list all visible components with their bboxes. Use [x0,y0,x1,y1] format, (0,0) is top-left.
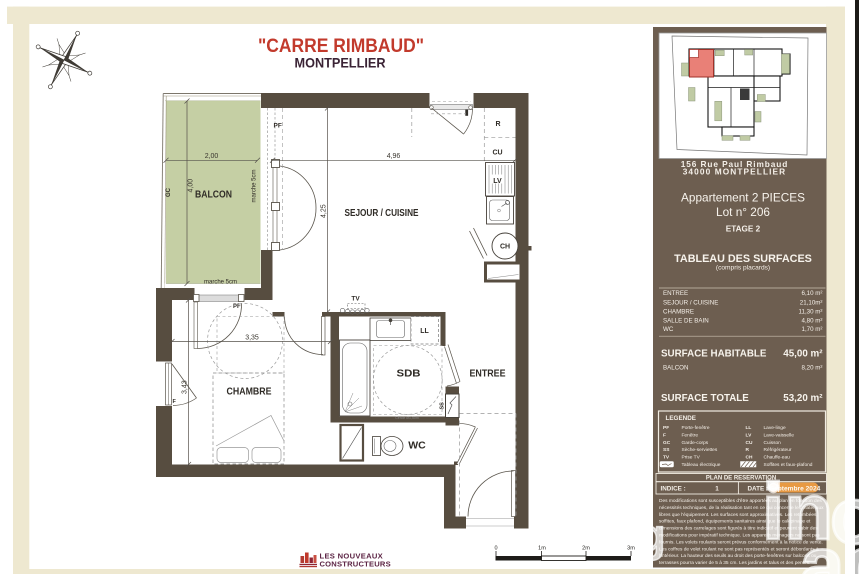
svg-text:Chauffe-eau: Chauffe-eau [764,455,791,461]
svg-text:GC: GC [166,187,172,197]
svg-text:CONSTRUCTEURS: CONSTRUCTEURS [320,559,391,568]
svg-text:SS: SS [663,447,670,453]
svg-text:SEJOUR / CUISINE: SEJOUR / CUISINE [663,300,718,307]
svg-text:SALLE DE BAIN: SALLE DE BAIN [663,318,709,325]
svg-text:Fenêtre: Fenêtre [682,432,699,438]
svg-text:ENTREE: ENTREE [663,290,688,297]
svg-text:WC: WC [408,440,426,452]
svg-text:TV: TV [351,296,360,303]
svg-text:Cuisson: Cuisson [764,440,782,446]
svg-text:Lave-linge: Lave-linge [764,425,786,431]
svg-text:SURFACE TOTALE: SURFACE TOTALE [661,393,749,404]
svg-text:LEGENDE: LEGENDE [666,415,696,422]
svg-text:Appartement 2 PIECES: Appartement 2 PIECES [681,191,805,205]
svg-text:Garde-corps: Garde-corps [682,440,709,446]
svg-text:6,10 m²: 6,10 m² [802,290,823,297]
svg-text:TABLEAU DES SURFACES: TABLEAU DES SURFACES [674,253,812,265]
svg-text:53,20 m²: 53,20 m² [783,393,823,404]
svg-text:21,10m²: 21,10m² [800,300,823,307]
svg-text:INDICE :: INDICE : [661,485,686,492]
svg-text:2m: 2m [582,546,590,552]
svg-text:Cercle Ø1,50m: Cercle Ø1,50m [395,416,419,420]
svg-text:Lave-vaisselle: Lave-vaisselle [764,432,795,438]
svg-text:Sèche-serviettes: Sèche-serviettes [682,447,718,453]
svg-text:2,00: 2,00 [205,153,219,160]
svg-text:R: R [746,447,750,453]
svg-text:1m: 1m [538,546,546,552]
svg-text:CH: CH [500,244,510,251]
svg-text:ETAGE 2: ETAGE 2 [726,225,761,234]
svg-text:0: 0 [494,546,497,552]
svg-text:3,43: 3,43 [182,380,189,394]
svg-text:BALCON: BALCON [195,189,232,201]
svg-text:11,30 m²: 11,30 m² [799,309,823,316]
svg-text:Réfrigérateur: Réfrigérateur [764,447,792,453]
svg-text:1: 1 [715,485,719,492]
svg-text:4,80 m²: 4,80 m² [802,318,823,325]
svg-text:Porte-fenêtre: Porte-fenêtre [682,425,710,431]
svg-text:GC: GC [663,440,671,446]
svg-text:1,70 m²: 1,70 m² [802,326,823,333]
svg-text:terrasses pourra varier de 5 à: terrasses pourra varier de 5 à 35 cm. Le… [659,560,810,566]
svg-text:F: F [663,432,666,438]
svg-text:34000 MONTPELLIER: 34000 MONTPELLIER [683,166,787,176]
svg-text:CU: CU [746,440,753,446]
svg-text:4,96: 4,96 [387,153,401,160]
svg-text:4,00: 4,00 [188,179,195,193]
svg-text:CHAMBRE: CHAMBRE [663,309,694,316]
svg-text:4,25: 4,25 [321,204,328,218]
svg-text:R: R [495,121,500,128]
svg-text:PF: PF [663,425,669,431]
svg-text:LL: LL [746,425,752,431]
svg-text:ad: ad [800,520,860,574]
svg-text:LL: LL [420,328,429,335]
svg-text:SS: SS [440,402,446,410]
svg-text:SDB: SDB [397,368,421,380]
svg-text:MONTPELLIER: MONTPELLIER [295,56,386,71]
svg-text:marche 5cm: marche 5cm [252,169,258,202]
svg-text:Lot n° 206: Lot n° 206 [716,205,770,219]
svg-text:ENTREE: ENTREE [470,369,506,380]
svg-text:LV: LV [493,178,502,185]
svg-text:3m: 3m [627,546,635,552]
svg-text:SURFACE HABITABLE: SURFACE HABITABLE [661,349,767,360]
svg-text:3,35: 3,35 [245,335,259,342]
svg-text:8,20 m²: 8,20 m² [802,365,823,372]
svg-text:CU: CU [492,150,502,157]
svg-text:Tableau électrique: Tableau électrique [682,462,721,468]
svg-text:SEJOUR / CUISINE: SEJOUR / CUISINE [345,207,419,219]
svg-text:45,00 m²: 45,00 m² [783,349,823,360]
svg-text:(compris placards): (compris placards) [716,265,770,272]
svg-text:g: g [638,510,666,561]
svg-text:WC: WC [663,326,674,333]
svg-text:Prise TV: Prise TV [682,455,701,461]
svg-text:LV: LV [746,432,753,438]
svg-text:CH: CH [746,455,753,461]
svg-text:TV: TV [663,455,670,461]
svg-text:BALCON: BALCON [663,365,688,372]
svg-text:PF: PF [274,123,282,130]
svg-text:"CARRE RIMBAUD": "CARRE RIMBAUD" [258,35,424,57]
svg-text:CHAMBRE: CHAMBRE [227,386,272,398]
svg-text:marche 5cm: marche 5cm [204,280,237,286]
